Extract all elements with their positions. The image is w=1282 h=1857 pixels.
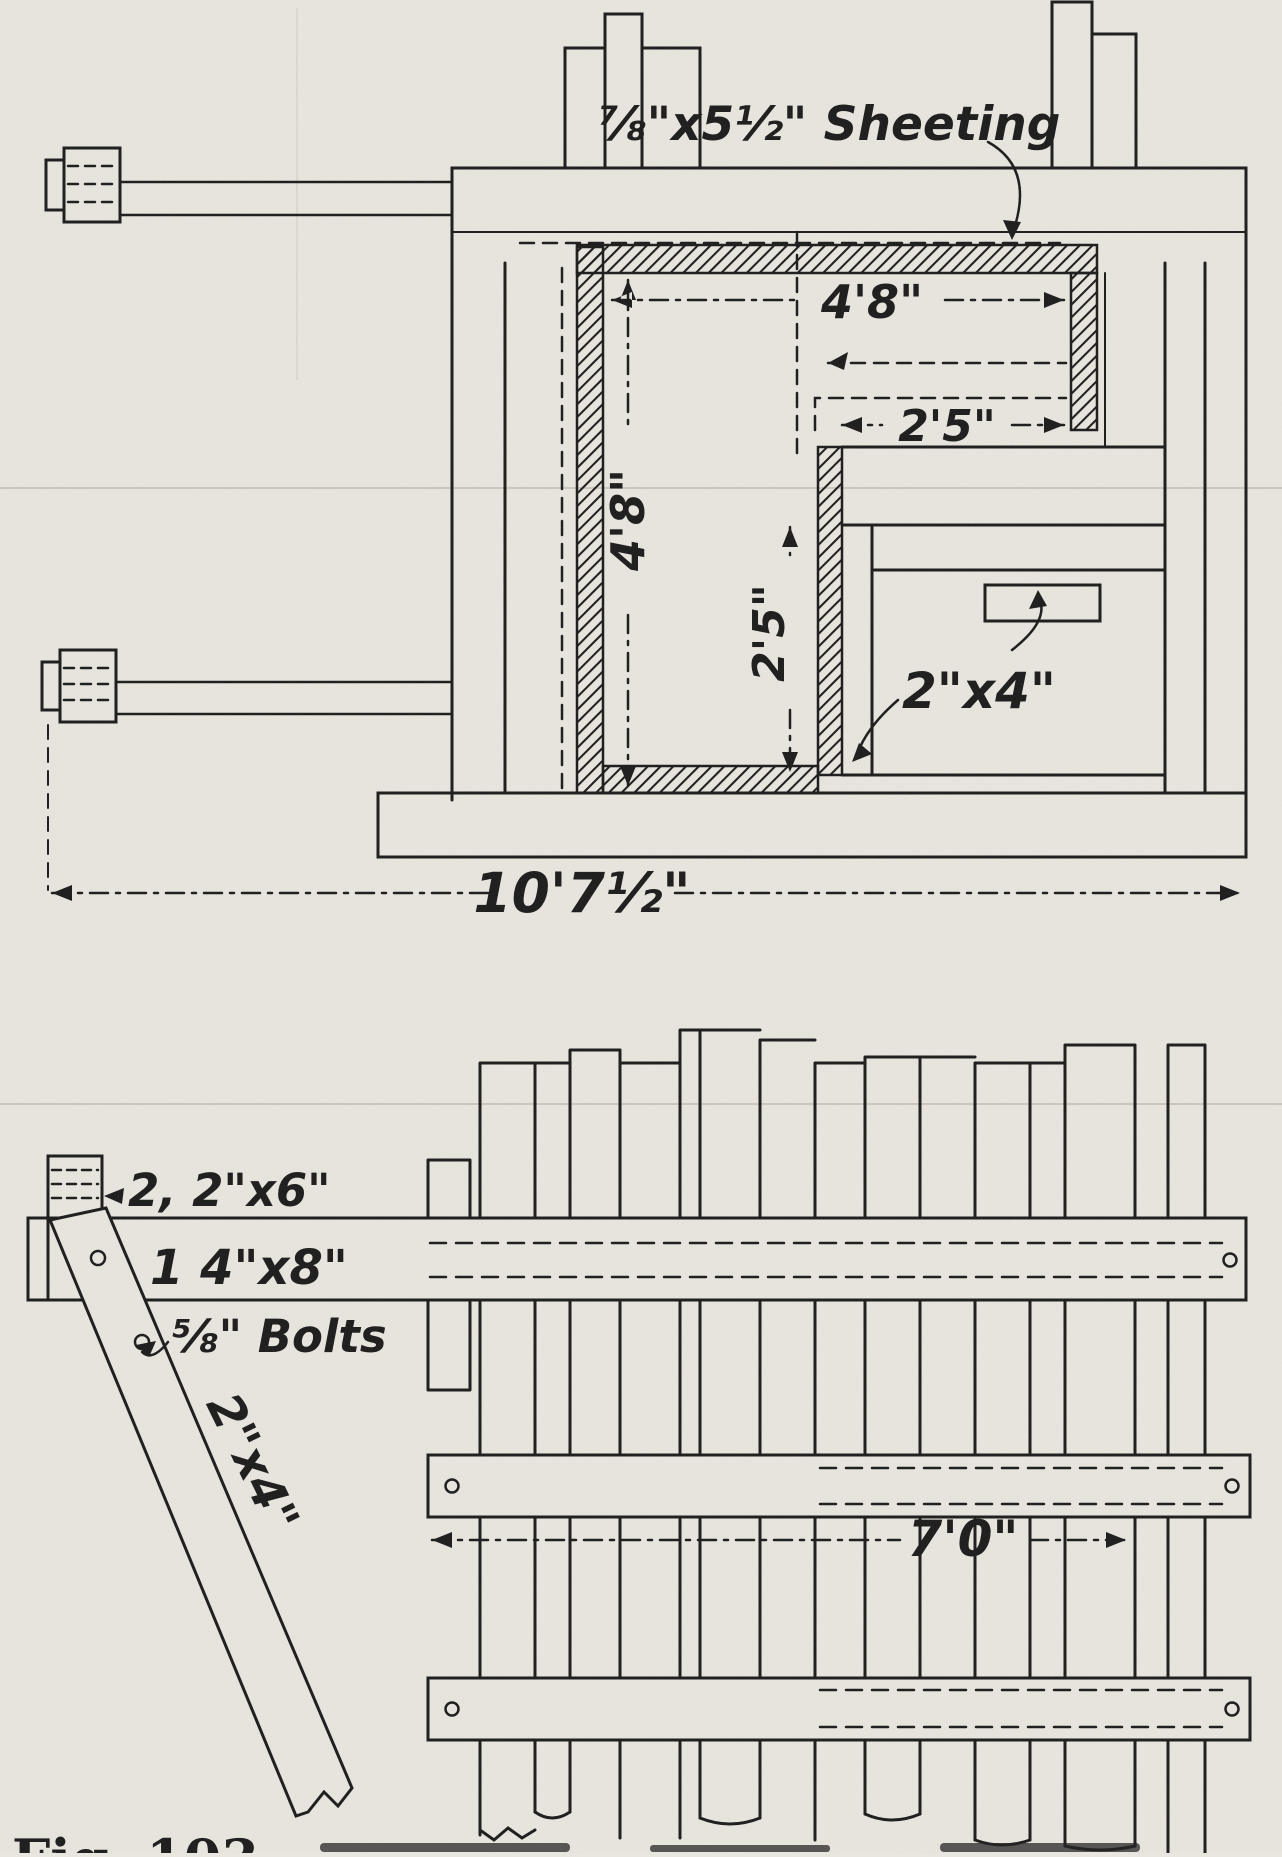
scanned-drawing-page: ⅞"x5½" Sheeting 4'8" 2'5" 4'8" 2'5" 2"x4… (0, 0, 1282, 1853)
figure-caption: Fig. 103. (12, 1827, 1140, 1853)
sheeting-top (577, 245, 1097, 273)
dimension-arrowheads (52, 280, 1240, 901)
ledger-leader-down (858, 700, 898, 752)
wale-4x8-label: 1 4"x8" (150, 1240, 348, 1296)
caption-cut-word (320, 1843, 570, 1852)
plan-dim-overall: 10'7½" (473, 861, 690, 925)
bolts-label: ⅝" Bolts (172, 1310, 387, 1363)
plan-dim-step-width: 2'5" (898, 401, 996, 452)
plan-dim-inner-height: 4'8" (601, 469, 655, 572)
middle-waler (428, 1455, 1250, 1517)
sheeting-sill (603, 766, 818, 793)
figure-caption-fragment: Fig. 103. (12, 1827, 278, 1853)
elev-dim-width: 7'0" (908, 1510, 1019, 1568)
sheeting-right (1071, 273, 1097, 430)
tie-rod-bolt-bottom (42, 650, 452, 722)
wale-end-cap (28, 1218, 48, 1300)
bottom-wale-plank (378, 793, 1246, 857)
sheeting-left (577, 247, 603, 793)
elevation-view: 2, 2"x6" 1 4"x8" ⅝" Bolts 2"x4" 7'0" (28, 1030, 1250, 1853)
plan-dim-inner-width: 4'8" (820, 275, 923, 329)
right-stud-lines (1165, 263, 1246, 793)
ledger-2x4-label: 2"x4" (902, 662, 1056, 720)
sheeting-inner (818, 447, 842, 775)
plan-view: ⅞"x5½" Sheeting 4'8" 2'5" 4'8" 2'5" 2"x4… (42, 2, 1246, 925)
plan-dim-step-height: 2'5" (744, 584, 795, 682)
corner-block (842, 447, 1165, 775)
plates-2x6-label: 2, 2"x6" (128, 1164, 331, 1217)
left-stud-lines (452, 263, 505, 800)
top-studs-right (1052, 2, 1136, 168)
sheeting-leader (988, 142, 1020, 232)
caption-cut-word (650, 1845, 830, 1852)
tie-rod-bolt-top (46, 148, 452, 222)
technical-drawing: ⅞"x5½" Sheeting 4'8" 2'5" 4'8" 2'5" 2"x4… (0, 0, 1282, 1853)
bottom-waler (428, 1678, 1250, 1740)
sheeting-label: ⅞"x5½" Sheeting (598, 97, 1060, 152)
construction-lines (48, 232, 1066, 890)
caption-cut-word (940, 1843, 1140, 1852)
double-plate-post (48, 1156, 102, 1218)
plates-arrow (104, 1188, 124, 1204)
